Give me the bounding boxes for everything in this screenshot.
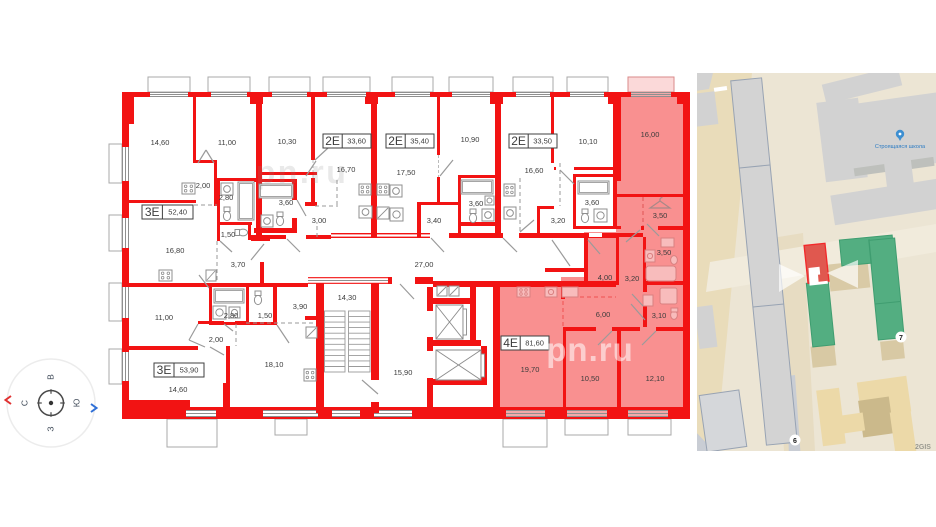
svg-text:11,00: 11,00 (218, 138, 236, 147)
svg-text:4,00: 4,00 (598, 273, 613, 282)
svg-text:3,90: 3,90 (293, 302, 308, 311)
svg-text:17,50: 17,50 (397, 168, 416, 177)
svg-text:3Е: 3Е (157, 363, 172, 377)
svg-text:33,50: 33,50 (533, 137, 552, 146)
svg-text:6: 6 (793, 438, 797, 445)
svg-text:12,10: 12,10 (646, 374, 665, 383)
svg-text:1,50: 1,50 (258, 311, 273, 320)
svg-text:3,10: 3,10 (652, 311, 667, 320)
svg-text:3,20: 3,20 (625, 274, 640, 283)
svg-text:2,00: 2,00 (209, 335, 224, 344)
svg-text:7: 7 (899, 335, 903, 342)
svg-text:16,80: 16,80 (166, 246, 185, 255)
svg-text:14,60: 14,60 (151, 138, 170, 147)
svg-text:14,60: 14,60 (169, 385, 188, 394)
svg-text:2,80: 2,80 (224, 311, 239, 320)
svg-text:2,00: 2,00 (196, 181, 211, 190)
svg-text:14,30: 14,30 (338, 293, 357, 302)
svg-text:10,90: 10,90 (461, 135, 480, 144)
svg-text:2Е: 2Е (325, 134, 340, 148)
svg-text:81,60: 81,60 (525, 339, 544, 348)
svg-text:3,70: 3,70 (231, 260, 246, 269)
svg-text:Ю: Ю (71, 398, 81, 407)
svg-text:2Е: 2Е (511, 134, 526, 148)
svg-text:3,60: 3,60 (279, 198, 294, 207)
svg-text:10,30: 10,30 (278, 137, 297, 146)
svg-text:Строящаяся школа: Строящаяся школа (875, 144, 926, 150)
svg-text:11,00: 11,00 (155, 313, 173, 322)
svg-text:16,60: 16,60 (525, 166, 544, 175)
svg-text:3,50: 3,50 (653, 211, 668, 220)
svg-text:3,40: 3,40 (427, 216, 442, 225)
svg-text:10,50: 10,50 (581, 374, 600, 383)
svg-text:В: В (45, 374, 55, 380)
svg-text:52,40: 52,40 (168, 208, 187, 217)
svg-text:10,10: 10,10 (579, 137, 598, 146)
svg-text:С: С (19, 400, 29, 406)
svg-text:19,70: 19,70 (521, 365, 540, 374)
svg-text:53,90: 53,90 (180, 366, 199, 375)
svg-text:З: З (45, 426, 55, 431)
svg-text:4Е: 4Е (503, 336, 518, 350)
svg-text:3,50: 3,50 (657, 248, 672, 257)
svg-text:3Е: 3Е (145, 205, 160, 219)
svg-text:2Е: 2Е (388, 134, 403, 148)
svg-text:18,10: 18,10 (265, 360, 284, 369)
svg-text:pn.ru: pn.ru (256, 154, 348, 190)
svg-text:pn.ru: pn.ru (546, 331, 633, 368)
svg-text:15,90: 15,90 (394, 368, 413, 377)
svg-text:3,60: 3,60 (469, 199, 484, 208)
svg-text:27,00: 27,00 (415, 260, 434, 269)
svg-text:6,00: 6,00 (596, 310, 611, 319)
svg-text:2,80: 2,80 (219, 193, 234, 202)
svg-text:3,00: 3,00 (312, 216, 327, 225)
svg-text:33,60: 33,60 (347, 137, 366, 146)
svg-text:35,40: 35,40 (410, 137, 429, 146)
svg-text:1,50: 1,50 (221, 230, 236, 239)
svg-text:2GIS: 2GIS (915, 444, 931, 451)
svg-text:3,20: 3,20 (551, 216, 566, 225)
svg-text:3,60: 3,60 (585, 198, 600, 207)
svg-text:16,00: 16,00 (641, 130, 660, 139)
